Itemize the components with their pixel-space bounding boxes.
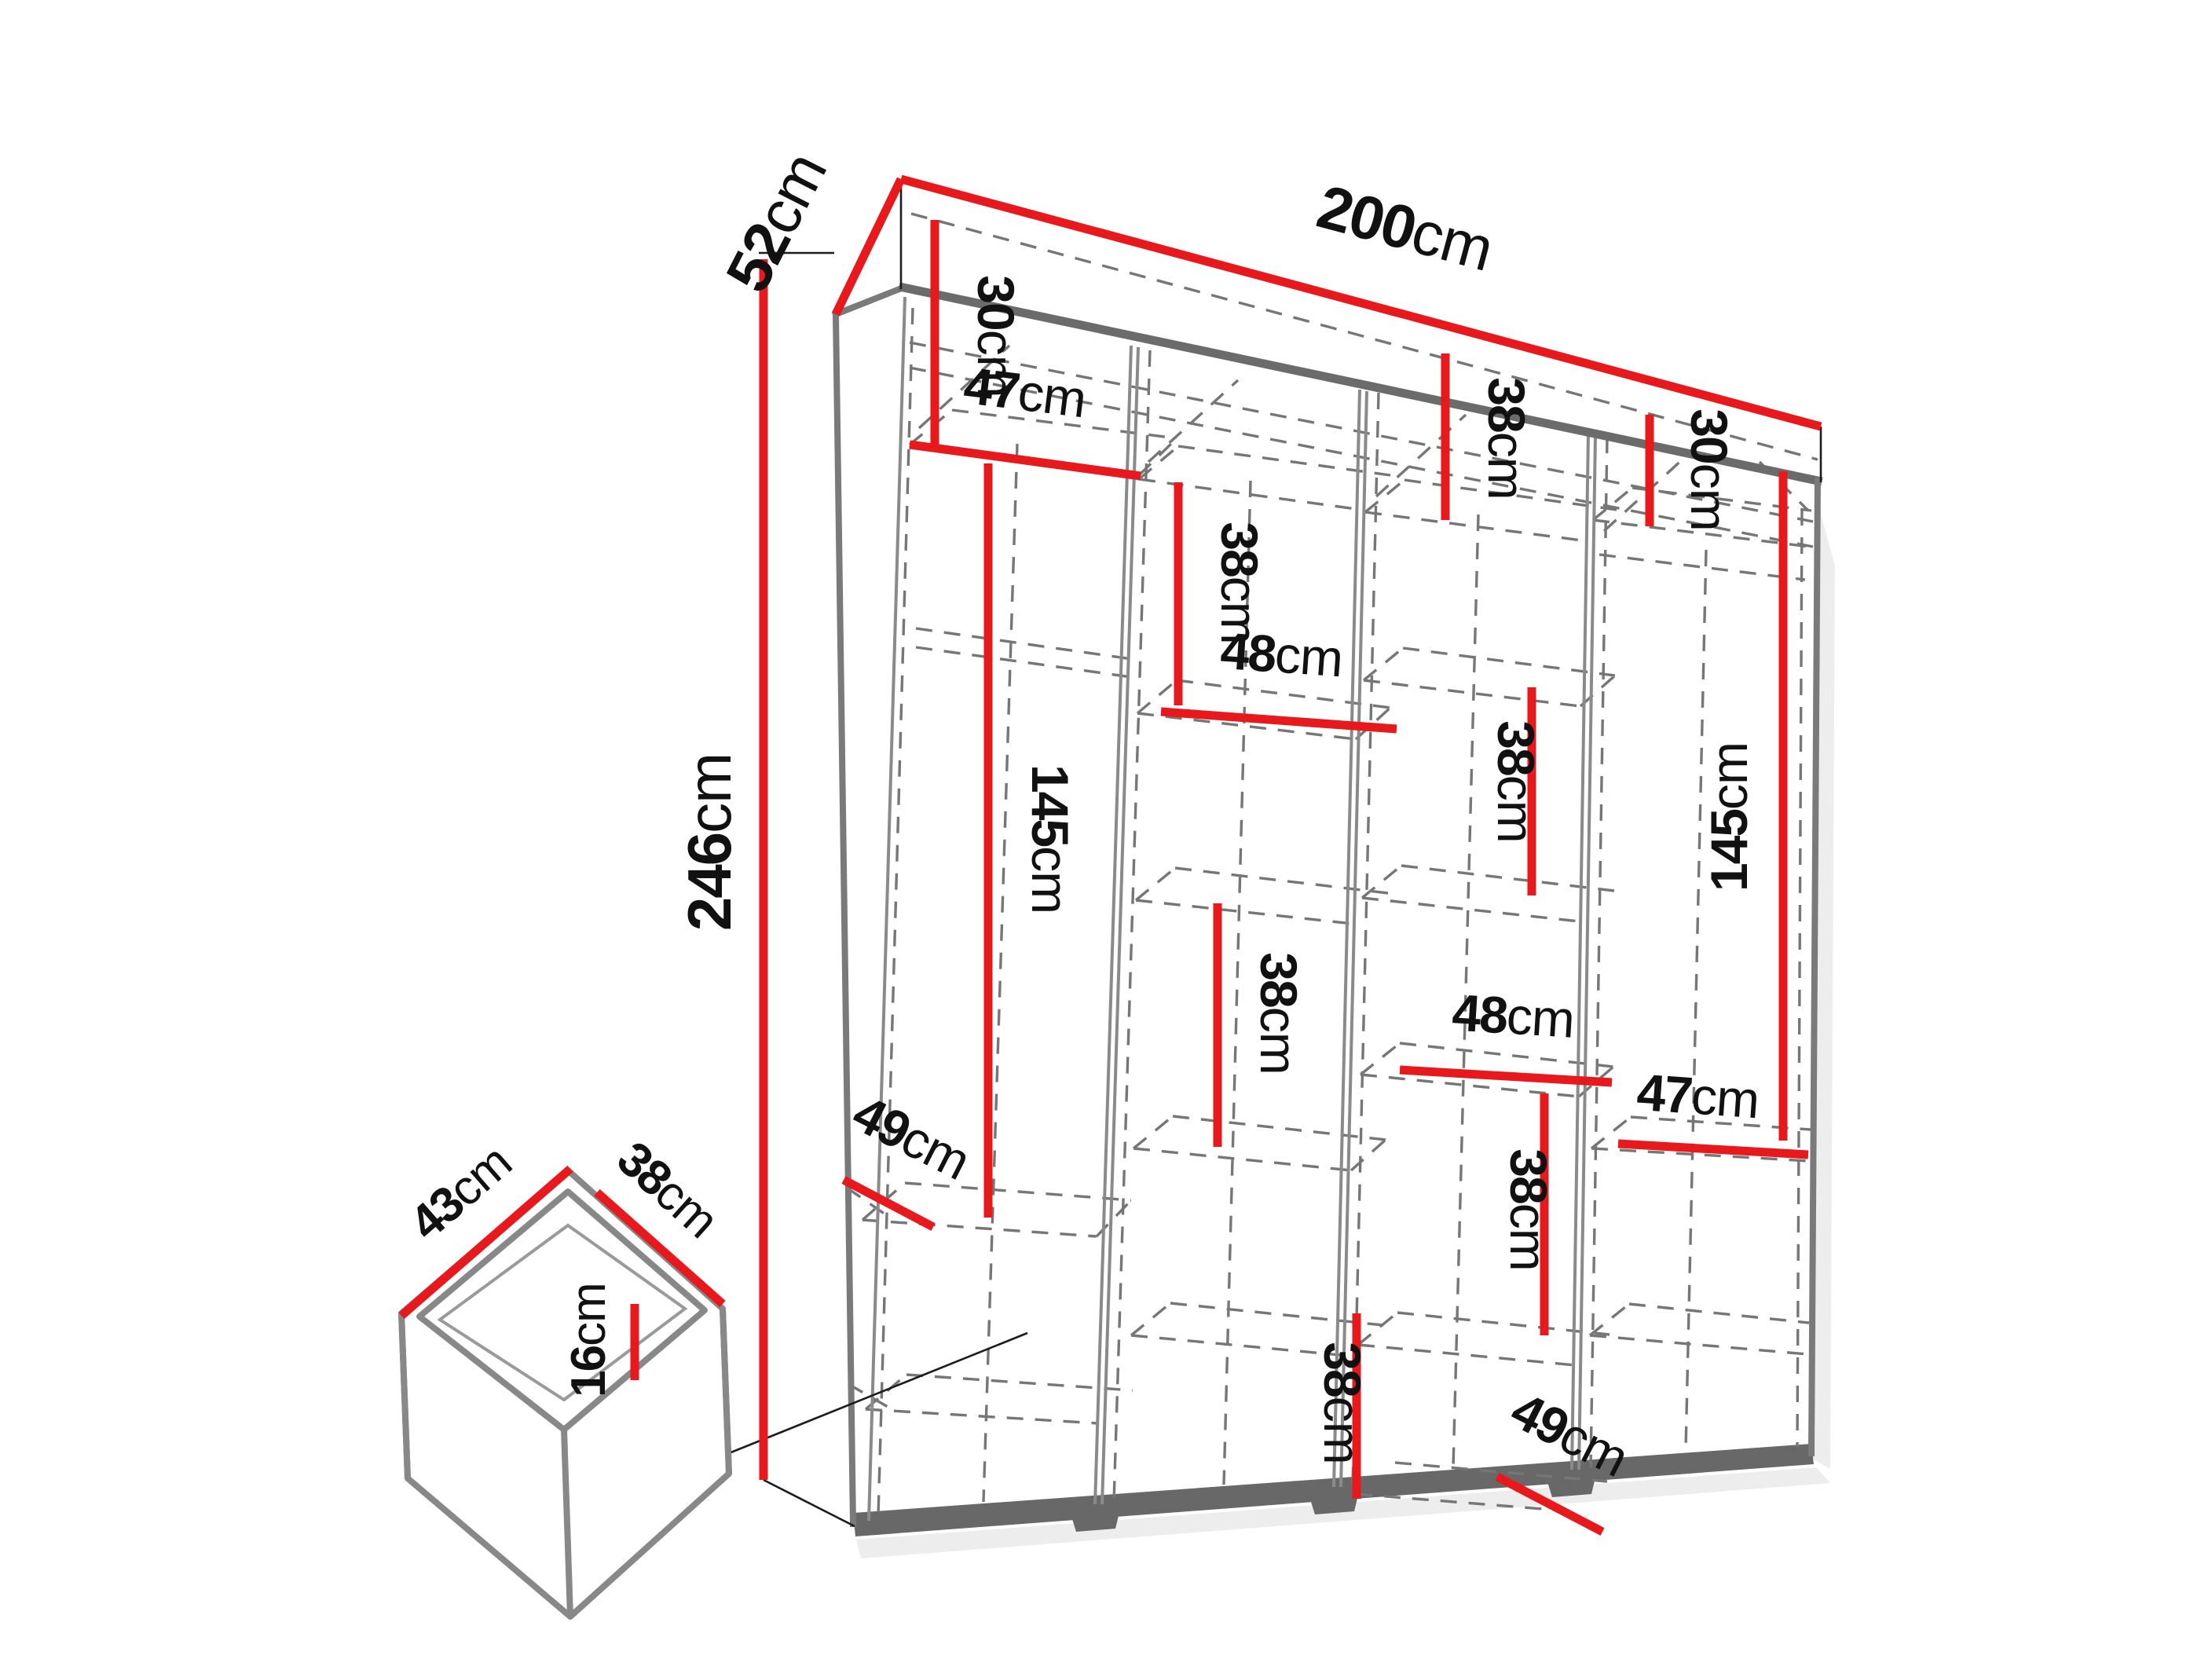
label-col3-38c: 38cm — [1500, 1148, 1558, 1270]
label-width-200: 200cm — [1310, 171, 1500, 284]
label-col1-145: 145cm — [1021, 764, 1079, 914]
label-col3-38b: 38cm — [1487, 720, 1545, 842]
diagram-canvas: 200cm 52cm 246cm 30cm 47cm 145cm 49cm 38… — [0, 0, 2212, 1659]
label-col3-48: 48cm — [1451, 983, 1577, 1048]
label-col4-145: 145cm — [1700, 742, 1758, 892]
label-drawer-16: 16cm — [562, 1283, 616, 1397]
label-col4-30: 30cm — [1680, 408, 1738, 530]
label-depth-52: 52cm — [712, 141, 840, 302]
height-dim-bottom-tick — [764, 1480, 855, 1526]
label-col2-38b: 38cm — [1250, 952, 1308, 1074]
label-col3-38a: 38cm — [1478, 377, 1536, 499]
label-col4-47: 47cm — [1635, 1063, 1761, 1130]
foot — [1068, 1503, 1122, 1532]
label-col3-38d: 38cm — [1313, 1342, 1372, 1463]
label-col2-48: 48cm — [1219, 621, 1345, 688]
label-height-246: 246cm — [675, 753, 744, 931]
wardrobe-dimension-diagram: 200cm 52cm 246cm 30cm 47cm 145cm 49cm 38… — [0, 0, 2212, 1659]
